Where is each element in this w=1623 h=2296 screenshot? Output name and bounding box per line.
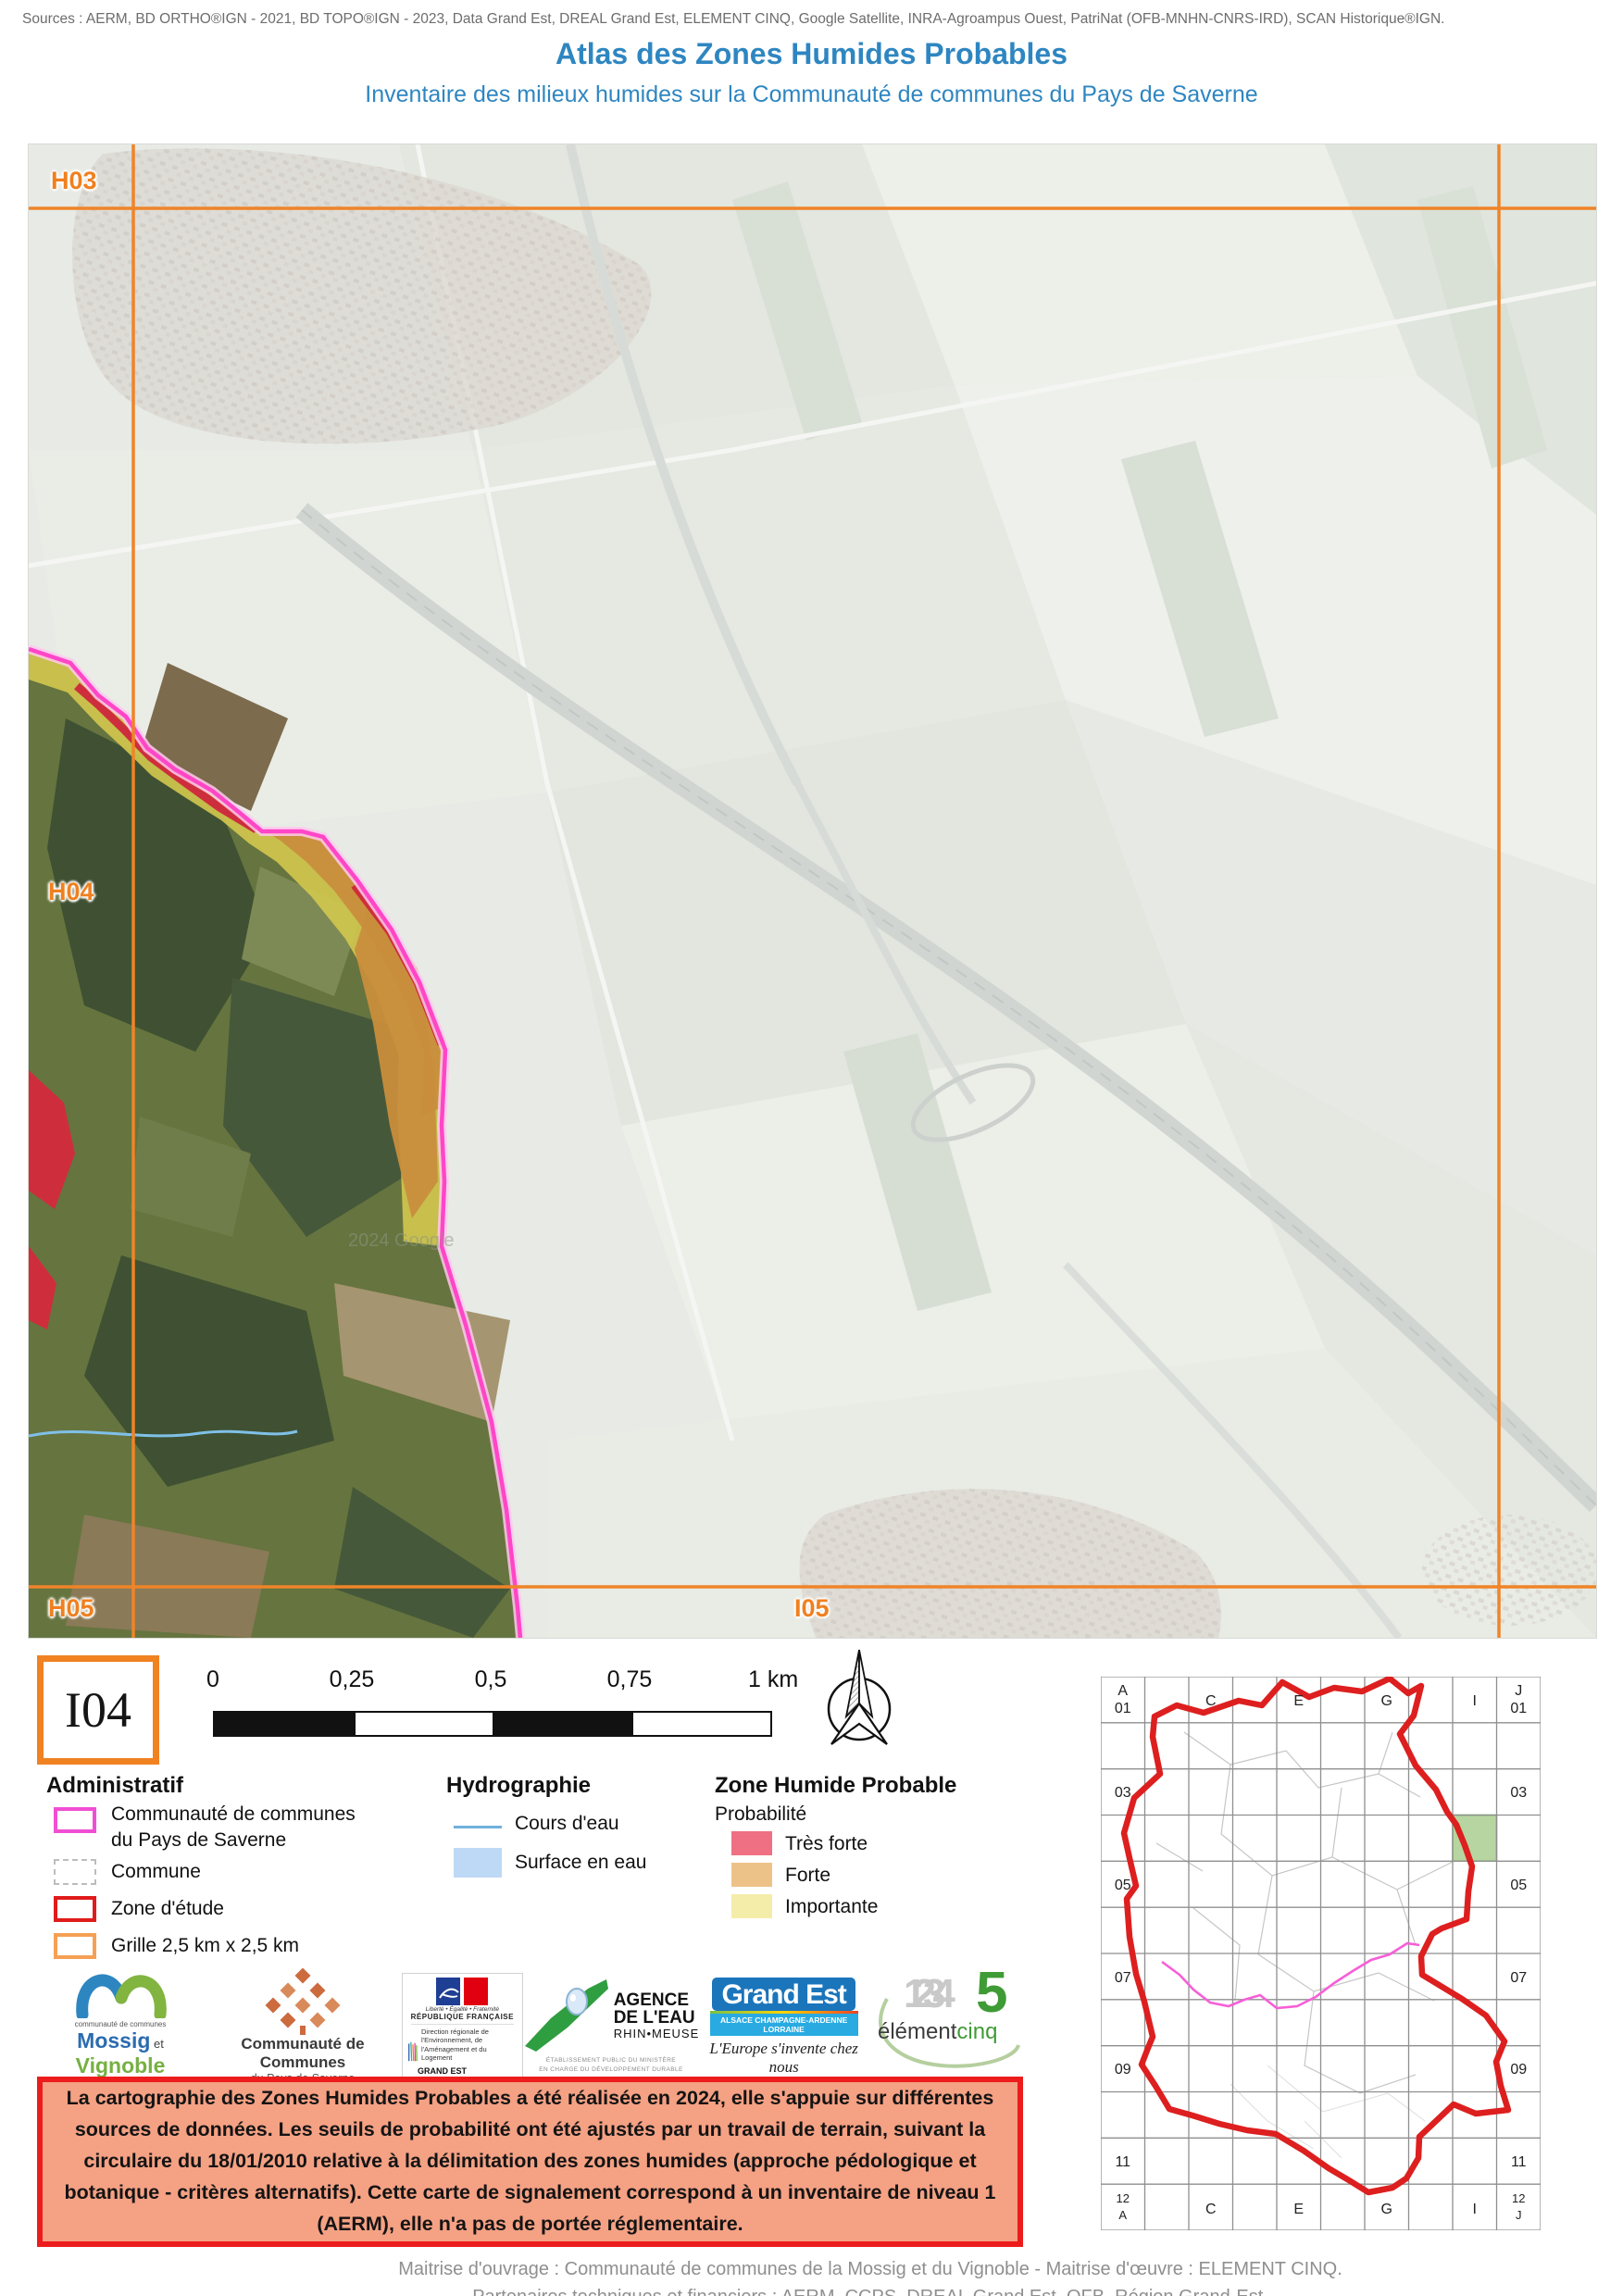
svg-text:E: E bbox=[1293, 1693, 1304, 1709]
element-word1: élément bbox=[878, 2019, 956, 2044]
dreal-region: GRAND EST bbox=[418, 2066, 518, 2076]
atlas-sheet: Sources : AERM, BD ORTHO®IGN - 2021, BD … bbox=[0, 0, 1623, 2296]
grand-est-name: Grand Est bbox=[721, 1979, 845, 2010]
svg-text:A: A bbox=[1118, 2208, 1127, 2222]
svg-text:J: J bbox=[1515, 1683, 1522, 1699]
scale-segment bbox=[631, 1713, 770, 1735]
french-flag-icon bbox=[436, 1978, 488, 2005]
legend-label-forte: Forte bbox=[785, 1865, 830, 1887]
element-cinq-five: 5 bbox=[976, 1960, 1007, 2026]
svg-text:03: 03 bbox=[1510, 1785, 1527, 1801]
swatch-importante bbox=[731, 1894, 772, 1918]
element-cinq-word: élémentcinq bbox=[878, 2019, 997, 2045]
dreal-motto: Liberté • Égalité • Fraternité bbox=[426, 2006, 499, 2013]
svg-text:G: G bbox=[1381, 1693, 1392, 1709]
svg-text:G: G bbox=[1381, 2202, 1392, 2217]
legend-label-zone-etude: Zone d'étude bbox=[111, 1898, 224, 1920]
svg-text:05: 05 bbox=[1510, 1878, 1527, 1893]
page-subtitle: Inventaire des milieux humides sur la Co… bbox=[0, 81, 1623, 108]
svg-text:11: 11 bbox=[1115, 2154, 1130, 2170]
swatch-surface-eau bbox=[454, 1848, 502, 1878]
legend-label-grille: Grille 2,5 km x 2,5 km bbox=[111, 1935, 299, 1957]
ccps-diamond-icon bbox=[247, 1968, 358, 2035]
map-watermark: 2024 Google bbox=[348, 1230, 455, 1251]
grand-est-tagline: L'Europe s'invente chez nous bbox=[699, 2040, 868, 2077]
swatch-grille bbox=[54, 1933, 96, 1959]
svg-text:A: A bbox=[1117, 1683, 1128, 1699]
svg-text:07: 07 bbox=[1510, 1970, 1527, 1986]
grid-label-h05: H05 bbox=[48, 1594, 94, 1623]
credits-line2: Partenaires techniques et financiers : A… bbox=[167, 2283, 1574, 2296]
current-cell-id: I04 bbox=[65, 1681, 131, 1739]
mossig-name2: Vignoble bbox=[76, 2053, 166, 2078]
scale-tick-0: 0 bbox=[157, 1666, 268, 1693]
svg-text:C: C bbox=[1205, 1693, 1217, 1709]
credits: Maitrise d'ouvrage : Communauté de commu… bbox=[167, 2255, 1574, 2296]
svg-text:09: 09 bbox=[1115, 2062, 1131, 2078]
swatch-commune bbox=[54, 1859, 96, 1885]
svg-text:12: 12 bbox=[1512, 2191, 1525, 2205]
element-word2: cinq bbox=[956, 2019, 997, 2044]
svg-text:I: I bbox=[1473, 2202, 1477, 2217]
logo-grand-est: Grand Est ALSACE CHAMPAGNE-ARDENNE LORRA… bbox=[699, 1978, 868, 2077]
agence-name-2: DE L'EAU bbox=[614, 2009, 700, 2027]
legend-label-tres-forte: Très forte bbox=[785, 1833, 868, 1855]
mossig-et: et bbox=[150, 2037, 163, 2051]
agence-name-1: AGENCE bbox=[614, 1991, 700, 2009]
scale-segment bbox=[354, 1713, 493, 1735]
page-title: Atlas des Zones Humides Probables bbox=[0, 37, 1623, 71]
credits-line1: Maitrise d'ouvrage : Communauté de commu… bbox=[167, 2255, 1574, 2283]
svg-text:05: 05 bbox=[1115, 1878, 1131, 1893]
mossig-name: Mossig et Vignoble bbox=[37, 2028, 204, 2078]
legend-label-cc-line1: Communauté de communes bbox=[111, 1803, 356, 1826]
element-cinq-numbers: 1234 bbox=[904, 1971, 943, 2017]
svg-text:09: 09 bbox=[1510, 2062, 1527, 2078]
logo-agence-eau: AGENCE DE L'EAU RHIN•MEUSE ÉTABLISSEMENT… bbox=[523, 1979, 700, 2073]
grand-est-band: ALSACE CHAMPAGNE-ARDENNE LORRAINE bbox=[710, 2014, 858, 2036]
svg-text:07: 07 bbox=[1115, 1970, 1131, 1986]
swatch-cc-pays-saverne bbox=[54, 1807, 96, 1833]
scale-segment bbox=[493, 1713, 631, 1735]
legend-zhp-title: Zone Humide Probable bbox=[715, 1773, 956, 1799]
legend-administratif-title: Administratif bbox=[46, 1773, 183, 1799]
dreal-direction: Direction régionale de l'Environnement, … bbox=[421, 2028, 518, 2063]
svg-text:I: I bbox=[1473, 1693, 1477, 1709]
partner-logos: communauté de communes Mossig et Vignobl… bbox=[37, 1961, 1026, 2092]
grid-label-h03: H03 bbox=[51, 167, 97, 195]
agence-rhin-meuse: RHIN•MEUSE bbox=[614, 2027, 700, 2040]
legend-zhp-subtitle: Probabilité bbox=[715, 1803, 806, 1826]
legend-label-cc-line2: du Pays de Saverne bbox=[111, 1829, 286, 1852]
mossig-name1: Mossig bbox=[77, 2028, 150, 2053]
scale-tick-075: 0,75 bbox=[574, 1666, 685, 1693]
svg-text:01: 01 bbox=[1510, 1701, 1527, 1716]
ccps-line1: Communauté de Communes bbox=[204, 2035, 402, 2072]
scale-bar bbox=[213, 1711, 772, 1737]
notice-box: La cartographie des Zones Humides Probab… bbox=[37, 2077, 1023, 2247]
svg-text:11: 11 bbox=[1511, 2154, 1527, 2170]
scale-tick-05: 0,5 bbox=[435, 1666, 546, 1693]
scale-segment bbox=[215, 1713, 354, 1735]
dreal-lines-icon bbox=[407, 2028, 418, 2076]
svg-text:E: E bbox=[1293, 2202, 1304, 2217]
sources-line: Sources : AERM, BD ORTHO®IGN - 2021, BD … bbox=[22, 11, 1605, 28]
main-map-canvas: 2024 Google bbox=[29, 144, 1596, 1638]
overview-map: A01 C E G I J01 03 05 07 09 11 03 05 07 … bbox=[1101, 1677, 1541, 2230]
swatch-zone-etude bbox=[54, 1896, 96, 1922]
scale-tick-025: 0,25 bbox=[296, 1666, 407, 1693]
logo-ccps: Communauté de Communes du Pays de Savern… bbox=[204, 1968, 402, 2085]
swatch-cours-eau bbox=[454, 1826, 502, 1828]
current-cell-box: I04 bbox=[37, 1655, 159, 1765]
logo-dreal: Liberté • Égalité • Fraternité RÉPUBLIQU… bbox=[402, 1973, 523, 2081]
main-map: 2024 Google bbox=[28, 143, 1597, 1639]
overview-canvas: A01 C E G I J01 03 05 07 09 11 03 05 07 … bbox=[1101, 1677, 1541, 2230]
agence-sub2: EN CHARGE DU DÉVELOPPEMENT DURABLE bbox=[539, 2065, 682, 2074]
agence-sub1: ÉTABLISSEMENT PUBLIC DU MINISTÈRE bbox=[539, 2056, 682, 2065]
agence-eau-icon bbox=[523, 1979, 608, 2052]
svg-text:12: 12 bbox=[1117, 2191, 1130, 2205]
grid-label-h04: H04 bbox=[48, 878, 94, 906]
notice-text: La cartographie des Zones Humides Probab… bbox=[43, 2078, 1017, 2246]
legend-label-cours-eau: Cours d'eau bbox=[515, 1813, 619, 1835]
svg-text:J: J bbox=[1516, 2208, 1522, 2222]
swatch-tres-forte bbox=[731, 1831, 772, 1855]
grid-label-i05: I05 bbox=[794, 1594, 830, 1623]
svg-text:C: C bbox=[1205, 2202, 1217, 2217]
logo-mossig-vignoble: communauté de communes Mossig et Vignobl… bbox=[37, 1961, 204, 2092]
grand-est-box: Grand Est bbox=[712, 1978, 855, 2011]
mossig-cc-text: communauté de communes bbox=[75, 2020, 167, 2028]
north-arrow-icon bbox=[813, 1648, 905, 1757]
legend-label-commune: Commune bbox=[111, 1861, 201, 1883]
legend-hydrographie-title: Hydrographie bbox=[446, 1773, 591, 1799]
svg-text:01: 01 bbox=[1115, 1701, 1131, 1716]
legend-label-importante: Importante bbox=[785, 1896, 878, 1918]
dreal-republic: RÉPUBLIQUE FRANÇAISE bbox=[411, 2013, 514, 2025]
svg-text:03: 03 bbox=[1115, 1785, 1131, 1801]
logo-element-cinq: 1234 5 élémentcinq bbox=[868, 1971, 1026, 2082]
swatch-forte bbox=[731, 1863, 772, 1887]
legend-label-surface-eau: Surface en eau bbox=[515, 1852, 646, 1874]
mossig-m-icon bbox=[69, 1961, 171, 2018]
